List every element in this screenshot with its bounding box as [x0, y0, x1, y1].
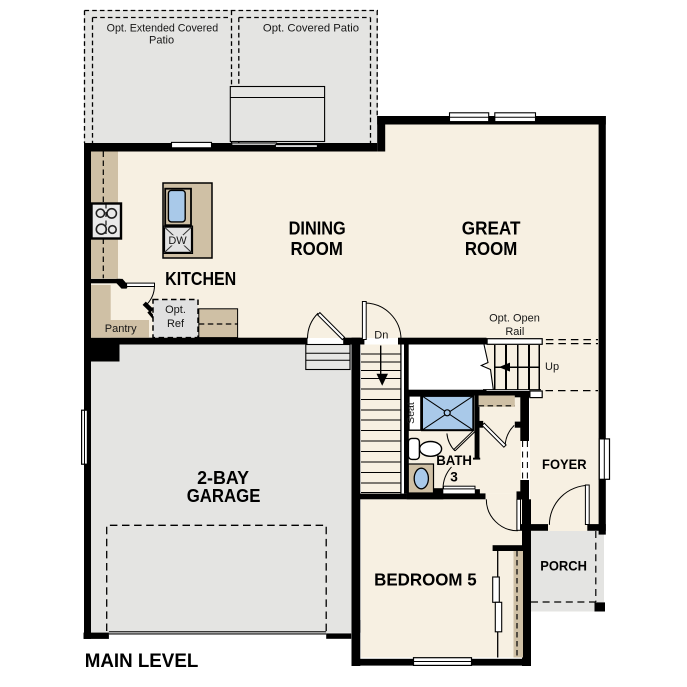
- svg-text:Up: Up: [545, 361, 559, 373]
- svg-text:BATH: BATH: [436, 453, 472, 468]
- svg-text:Rail: Rail: [505, 326, 524, 338]
- svg-text:ROOM: ROOM: [291, 238, 343, 259]
- svg-text:3: 3: [450, 470, 458, 485]
- svg-text:Opt. Open: Opt. Open: [489, 313, 540, 325]
- svg-text:Opt. Covered Patio: Opt. Covered Patio: [263, 22, 359, 34]
- svg-text:DW: DW: [168, 235, 187, 247]
- svg-text:PORCH: PORCH: [540, 558, 587, 573]
- svg-text:BEDROOM 5: BEDROOM 5: [374, 570, 477, 590]
- svg-text:DINING: DINING: [289, 218, 346, 239]
- svg-text:Dn: Dn: [374, 330, 388, 342]
- svg-text:Seat: Seat: [405, 402, 417, 424]
- svg-text:KITCHEN: KITCHEN: [165, 268, 236, 289]
- svg-text:Ref: Ref: [167, 318, 185, 330]
- svg-text:ROOM: ROOM: [465, 238, 517, 259]
- svg-text:FOYER: FOYER: [542, 457, 587, 472]
- svg-text:MAIN LEVEL: MAIN LEVEL: [85, 651, 199, 672]
- svg-text:GARAGE: GARAGE: [187, 485, 261, 506]
- svg-text:Pantry: Pantry: [105, 323, 137, 335]
- svg-text:Patio: Patio: [149, 35, 174, 47]
- svg-text:Opt. Extended Covered: Opt. Extended Covered: [107, 22, 219, 34]
- svg-text:Opt.: Opt.: [165, 304, 186, 316]
- svg-text:GREAT: GREAT: [462, 218, 521, 239]
